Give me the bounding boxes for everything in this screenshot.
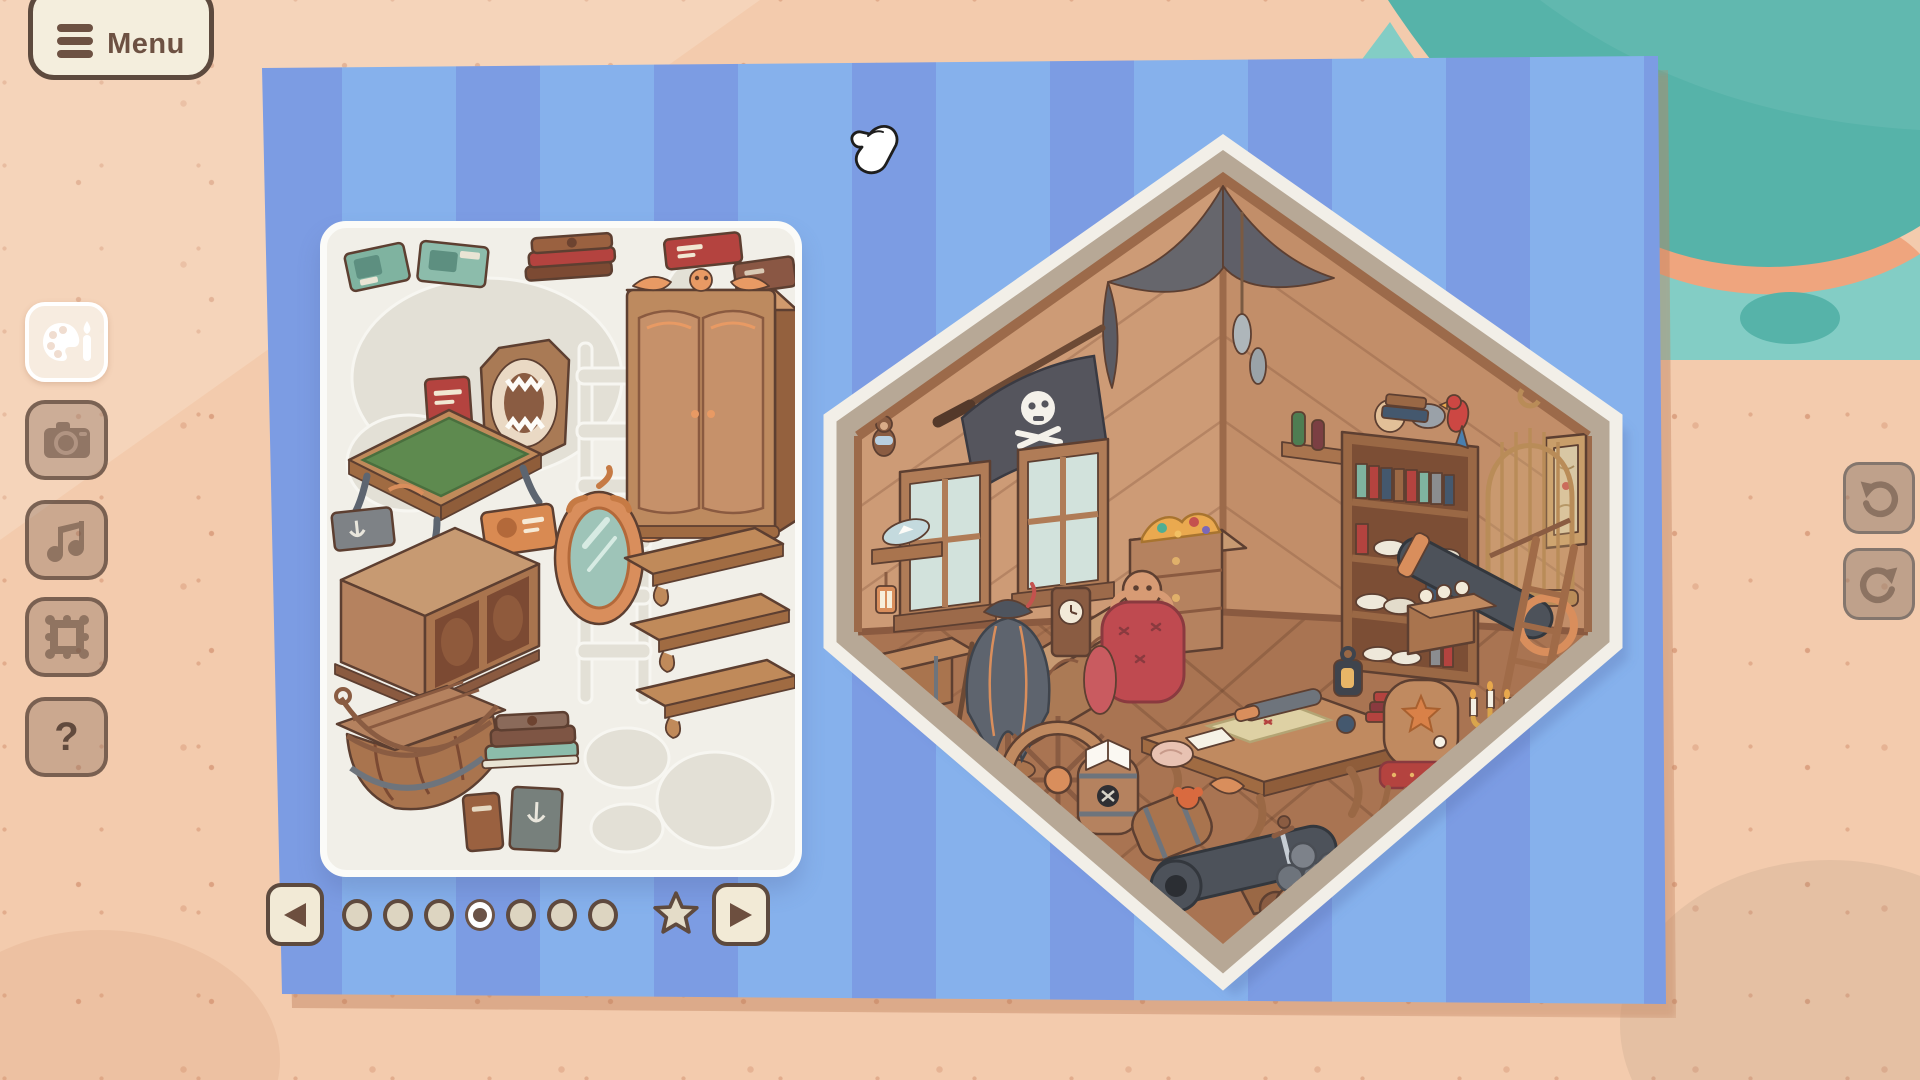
sticker-sheet xyxy=(327,228,795,870)
ghost-floor-blob-3 xyxy=(591,804,663,852)
palette-brush-icon xyxy=(41,319,93,365)
undo-icon xyxy=(1857,476,1901,520)
sticker-gray-book[interactable] xyxy=(331,507,395,551)
sticker-book-stack-top[interactable] xyxy=(523,233,616,281)
tool-frame-button[interactable] xyxy=(25,597,108,677)
redo-icon xyxy=(1857,562,1901,606)
page-dot-3[interactable] xyxy=(424,899,454,931)
sticker-tiny-book-b[interactable] xyxy=(509,787,562,852)
page-dots xyxy=(342,899,629,931)
tool-music-button[interactable] xyxy=(25,500,108,580)
star-page-button[interactable] xyxy=(652,890,700,945)
tool-decorate-button[interactable] xyxy=(25,302,108,382)
menu-label: Menu xyxy=(107,28,185,61)
sticker-red-book-top[interactable] xyxy=(664,232,743,270)
page-dot-4[interactable] xyxy=(465,899,495,931)
ghost-floor-blob-2 xyxy=(657,752,773,848)
powder-barrel[interactable] xyxy=(1078,740,1138,834)
ghost-floor-blob-1 xyxy=(585,728,669,788)
sand-patch-bottom-left xyxy=(0,930,280,1080)
hamburger-icon xyxy=(57,24,93,58)
page-dot-2[interactable] xyxy=(383,899,413,931)
sticker-hanging-basket[interactable] xyxy=(336,682,505,809)
tool-help-button[interactable]: ? xyxy=(25,697,108,777)
music-note-icon xyxy=(44,517,90,563)
page-dot-1[interactable] xyxy=(342,899,372,931)
rope-coil[interactable] xyxy=(1342,902,1434,934)
sticker-wardrobe[interactable] xyxy=(623,269,795,542)
page-dot-5[interactable] xyxy=(506,899,536,931)
redo-button[interactable] xyxy=(1843,548,1915,620)
right-arrow-icon xyxy=(728,901,754,929)
star-icon xyxy=(652,890,700,940)
prev-page-button[interactable] xyxy=(266,883,324,946)
game-screen: Menu xyxy=(0,0,1920,1080)
sticker-tiny-book-a[interactable] xyxy=(463,793,504,852)
menu-button[interactable]: Menu xyxy=(28,0,214,80)
picture-frame-icon xyxy=(44,614,90,660)
sticker-teal-book-b[interactable] xyxy=(417,241,489,288)
sticker-panel xyxy=(320,221,802,877)
tool-photo-button[interactable] xyxy=(25,400,108,480)
sticker-teal-book-a[interactable] xyxy=(344,242,411,292)
clock-cabinet[interactable] xyxy=(1052,588,1090,656)
undo-button[interactable] xyxy=(1843,462,1915,534)
left-arrow-icon xyxy=(282,901,308,929)
sticker-low-bookcase[interactable] xyxy=(335,528,539,712)
next-page-button[interactable] xyxy=(712,883,770,946)
camera-icon xyxy=(42,419,92,461)
sticker-wall-shelf-3[interactable] xyxy=(637,660,795,738)
page-dot-6[interactable] xyxy=(547,899,577,931)
window-right[interactable] xyxy=(1012,439,1114,610)
page-dot-7[interactable] xyxy=(588,899,618,931)
question-icon: ? xyxy=(54,717,78,757)
room-scene[interactable] xyxy=(790,120,1660,1000)
